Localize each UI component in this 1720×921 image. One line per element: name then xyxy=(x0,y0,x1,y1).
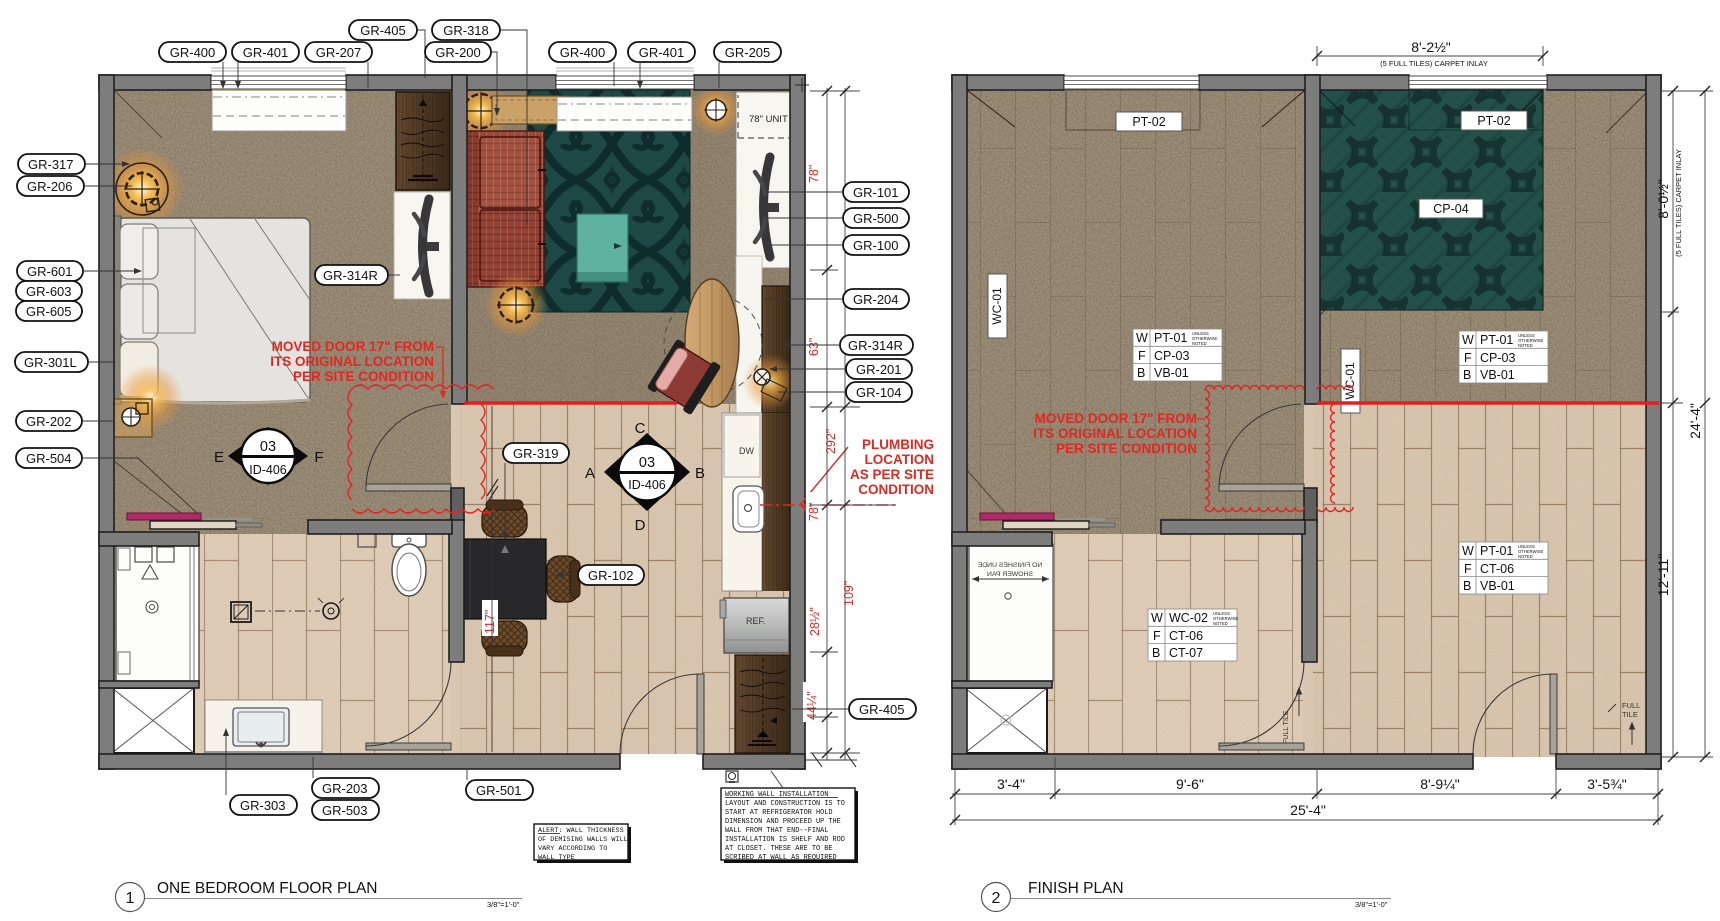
svg-text:A: A xyxy=(585,465,595,482)
svg-text:8'-0½": 8'-0½" xyxy=(1655,179,1671,219)
svg-text:ID-406: ID-406 xyxy=(249,463,287,477)
svg-text:W: W xyxy=(1462,544,1474,558)
svg-text:GR-200: GR-200 xyxy=(435,45,481,60)
svg-text:MOVED DOOR 17" FROM: MOVED DOOR 17" FROM xyxy=(1035,411,1197,426)
svg-text:GR-303: GR-303 xyxy=(240,798,286,813)
svg-text:WC-01: WC-01 xyxy=(1343,362,1357,400)
svg-text:12'-11": 12'-11" xyxy=(1655,554,1671,596)
svg-text:3'-5¾": 3'-5¾" xyxy=(1587,776,1627,792)
svg-text:GR-317: GR-317 xyxy=(28,157,74,172)
svg-text:NOTED: NOTED xyxy=(1192,341,1207,346)
svg-text:WALL FROM THAT END--FINAL: WALL FROM THAT END--FINAL xyxy=(725,827,828,835)
svg-text:GR-405: GR-405 xyxy=(360,23,406,38)
svg-text:GR-603: GR-603 xyxy=(26,284,72,299)
svg-text:PT-01: PT-01 xyxy=(1154,331,1187,345)
svg-text:GR-100: GR-100 xyxy=(853,238,899,253)
svg-text:AT CLOSET. THESE ARE TO BE: AT CLOSET. THESE ARE TO BE xyxy=(725,845,833,853)
svg-text:F: F xyxy=(1153,629,1161,643)
svg-text:SCRIBED AT WALL AS REQUIRED: SCRIBED AT WALL AS REQUIRED xyxy=(725,854,837,862)
svg-text:PLUMBING: PLUMBING xyxy=(862,437,934,452)
svg-text:03: 03 xyxy=(260,439,276,455)
svg-text:1: 1 xyxy=(126,890,135,907)
svg-text:FULL: FULL xyxy=(1622,701,1640,710)
svg-text:3/8"=1'-0": 3/8"=1'-0" xyxy=(487,900,520,909)
svg-text:ITS ORIGINAL LOCATION: ITS ORIGINAL LOCATION xyxy=(270,354,434,369)
svg-text:NO FINISHES UNDE: NO FINISHES UNDE xyxy=(977,562,1042,569)
svg-text:START AT REFRIGERATOR HOLD: START AT REFRIGERATOR HOLD xyxy=(725,809,833,817)
svg-text:CP-04: CP-04 xyxy=(1433,202,1468,216)
svg-text:B: B xyxy=(1152,646,1160,660)
svg-text:GR-207: GR-207 xyxy=(316,45,362,60)
svg-text:PT-01: PT-01 xyxy=(1480,333,1513,347)
svg-text:GR-401: GR-401 xyxy=(243,45,289,60)
svg-text:GR-104: GR-104 xyxy=(856,385,902,400)
svg-text:ONE BEDROOM FLOOR PLAN: ONE BEDROOM FLOOR PLAN xyxy=(157,880,377,897)
svg-text:GR-204: GR-204 xyxy=(853,292,899,307)
svg-text:24'-4": 24'-4" xyxy=(1687,403,1703,439)
svg-text:78" UNIT: 78" UNIT xyxy=(749,114,788,125)
svg-text:REF.: REF. xyxy=(746,616,766,626)
svg-text:PT-02: PT-02 xyxy=(1132,115,1165,129)
svg-text:GR-319: GR-319 xyxy=(513,446,559,461)
svg-text:NOTED: NOTED xyxy=(1213,621,1228,626)
svg-text:GR-101: GR-101 xyxy=(853,185,899,200)
svg-text:GR-201: GR-201 xyxy=(856,362,902,377)
svg-text:25'-4": 25'-4" xyxy=(1290,802,1326,818)
svg-text:F: F xyxy=(1138,349,1146,363)
svg-text:E: E xyxy=(214,449,224,466)
svg-text:ITS ORIGINAL LOCATION: ITS ORIGINAL LOCATION xyxy=(1033,426,1197,441)
svg-text:(5 FULL TILES) CARPET INLAY: (5 FULL TILES) CARPET INLAY xyxy=(1674,149,1683,257)
svg-text:GR-203: GR-203 xyxy=(322,781,368,796)
svg-text:8'-2½": 8'-2½" xyxy=(1411,39,1451,55)
svg-text:3'-4": 3'-4" xyxy=(997,776,1025,792)
svg-text:109": 109" xyxy=(842,581,856,606)
svg-text:CT-06: CT-06 xyxy=(1480,562,1514,576)
svg-text:3/8"=1'-0": 3/8"=1'-0" xyxy=(1355,900,1388,909)
svg-text:PT-01: PT-01 xyxy=(1480,544,1513,558)
svg-text:TILE: TILE xyxy=(1622,710,1638,719)
svg-text:GR-206: GR-206 xyxy=(27,179,73,194)
svg-text:F: F xyxy=(1464,562,1472,576)
svg-text:GR-601: GR-601 xyxy=(27,264,73,279)
svg-text:GR-314R: GR-314R xyxy=(848,338,903,353)
svg-text:FULL TILE: FULL TILE xyxy=(1283,710,1290,744)
svg-text:03: 03 xyxy=(639,455,655,471)
svg-text:C: C xyxy=(635,420,646,437)
svg-text:PER SITE CONDITION: PER SITE CONDITION xyxy=(293,369,434,384)
svg-text:W: W xyxy=(1136,331,1148,345)
svg-text:B: B xyxy=(695,465,705,482)
svg-text:CT-06: CT-06 xyxy=(1169,629,1203,643)
svg-text:28½": 28½" xyxy=(808,607,822,636)
svg-text:AS PER SITE: AS PER SITE xyxy=(850,467,934,482)
svg-text:CP-03: CP-03 xyxy=(1154,349,1189,363)
svg-text:8'-9¼": 8'-9¼" xyxy=(1420,776,1460,792)
svg-text:292": 292" xyxy=(824,429,838,454)
svg-text:GR-605: GR-605 xyxy=(26,304,72,319)
svg-text:INSTALLATION IS SHELF AND ROD: INSTALLATION IS SHELF AND ROD xyxy=(725,836,845,844)
svg-text:W: W xyxy=(1151,611,1163,625)
svg-text:LOCATION: LOCATION xyxy=(865,452,935,467)
svg-text:63": 63" xyxy=(807,338,821,356)
svg-text:B: B xyxy=(1463,579,1471,593)
svg-text:WALL TYPE: WALL TYPE xyxy=(538,854,575,862)
svg-text:GR-314R: GR-314R xyxy=(323,268,378,283)
svg-text:B: B xyxy=(1463,368,1471,382)
svg-text:GR-405: GR-405 xyxy=(859,702,905,717)
svg-text:DW: DW xyxy=(739,446,754,456)
svg-text:LAYOUT AND CONSTRUCTION IS TO: LAYOUT AND CONSTRUCTION IS TO xyxy=(725,800,845,808)
svg-text:VARY ACCORDING TO: VARY ACCORDING TO xyxy=(538,845,607,853)
svg-text:F: F xyxy=(314,449,323,466)
svg-text:GR-318: GR-318 xyxy=(443,23,489,38)
svg-text:PER SITE CONDITION: PER SITE CONDITION xyxy=(1056,441,1197,456)
svg-text:GR-202: GR-202 xyxy=(26,414,72,429)
svg-text:GR-503: GR-503 xyxy=(322,803,368,818)
svg-text:GR-102: GR-102 xyxy=(588,568,634,583)
svg-text:CT-07: CT-07 xyxy=(1169,646,1203,660)
svg-text:FINISH PLAN: FINISH PLAN xyxy=(1028,880,1124,897)
svg-text:W: W xyxy=(1462,333,1474,347)
svg-text:44¼": 44¼" xyxy=(805,691,819,720)
svg-text:VB-01: VB-01 xyxy=(1154,366,1189,380)
svg-text:MOVED DOOR 17" FROM: MOVED DOOR 17" FROM xyxy=(272,339,434,354)
svg-text:F: F xyxy=(1464,351,1472,365)
svg-text:9'-6": 9'-6" xyxy=(1176,776,1204,792)
svg-text:GR-400: GR-400 xyxy=(560,45,606,60)
svg-text:CP-03: CP-03 xyxy=(1480,351,1515,365)
svg-text:(5 FULL TILES) CARPET INLAY: (5 FULL TILES) CARPET INLAY xyxy=(1380,59,1488,68)
svg-text:VB-01: VB-01 xyxy=(1480,579,1515,593)
svg-text:78": 78" xyxy=(807,165,821,183)
svg-text:OF DEMISING WALLS WILL: OF DEMISING WALLS WILL xyxy=(538,836,628,844)
svg-text:GR-301L: GR-301L xyxy=(24,355,77,370)
svg-text:GR-504: GR-504 xyxy=(26,451,72,466)
svg-text:GR-400: GR-400 xyxy=(170,45,216,60)
svg-text:NOTED: NOTED xyxy=(1518,343,1533,348)
svg-text:WC-02: WC-02 xyxy=(1169,611,1208,625)
svg-text:ID-406: ID-406 xyxy=(628,478,666,492)
svg-text:2: 2 xyxy=(992,890,1001,907)
svg-text:GR-501: GR-501 xyxy=(476,783,522,798)
svg-text:VB-01: VB-01 xyxy=(1480,368,1515,382)
svg-text:WC-01: WC-01 xyxy=(990,287,1004,325)
svg-text:B: B xyxy=(1137,366,1145,380)
svg-text:D: D xyxy=(635,517,646,534)
svg-text:NOTED: NOTED xyxy=(1518,554,1533,559)
svg-text:CONDITION: CONDITION xyxy=(858,482,934,497)
svg-text:SHOWER PAN: SHOWER PAN xyxy=(987,571,1033,578)
svg-text:DIMENSION AND PROCEED UP THE: DIMENSION AND PROCEED UP THE xyxy=(725,818,841,826)
svg-text:GR-401: GR-401 xyxy=(639,45,685,60)
svg-text:GR-500: GR-500 xyxy=(853,211,899,226)
svg-text:117": 117" xyxy=(483,610,497,634)
svg-text:PT-02: PT-02 xyxy=(1477,114,1510,128)
svg-text:GR-205: GR-205 xyxy=(725,45,771,60)
